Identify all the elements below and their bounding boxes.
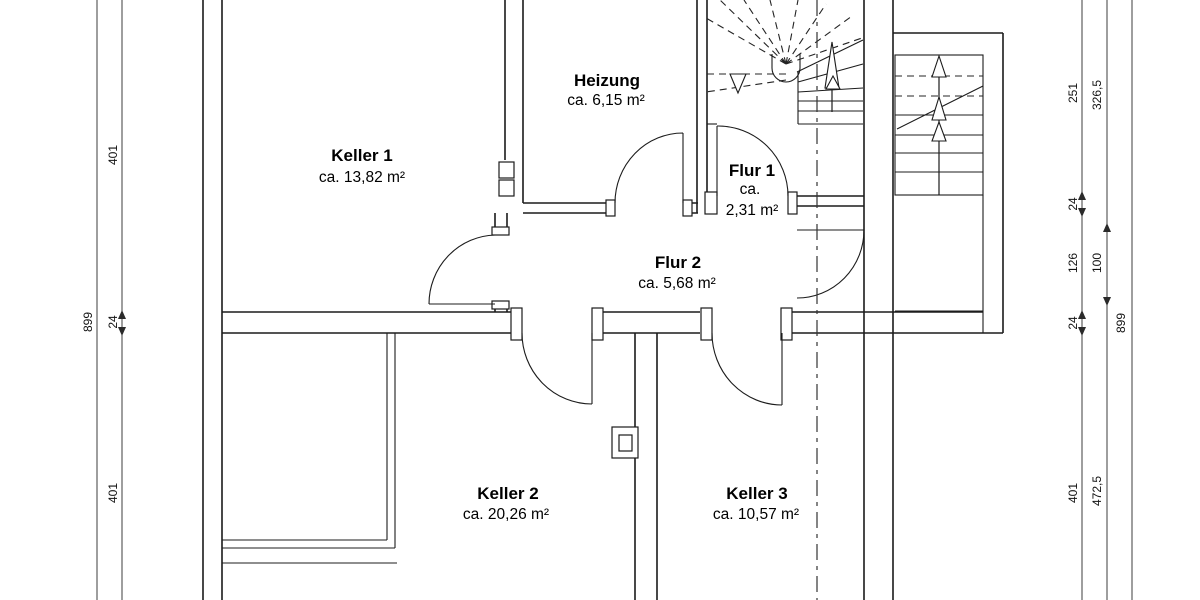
- door-jamb: [592, 308, 603, 340]
- dim-label-left-inner-2: 401: [106, 483, 120, 503]
- dimension-tick: [1103, 297, 1111, 306]
- room-name: Flur 2: [655, 253, 701, 272]
- dim-label-right-inner-1: 24: [1066, 197, 1080, 211]
- door-jamb: [511, 308, 522, 340]
- wall-spine: [222, 312, 1003, 333]
- room-area: 2,31 m²: [726, 202, 779, 219]
- dimension-tick: [1103, 223, 1111, 232]
- floor-plan-canvas: 899 401 24 401 251 24 126 24 401 326,5 1…: [0, 0, 1200, 600]
- room-area: ca.: [740, 181, 761, 198]
- room-area: ca. 20,26 m²: [463, 506, 549, 523]
- wall-left-exterior: [203, 0, 222, 600]
- door-jamb: [492, 301, 509, 309]
- chimney-flue-2: [499, 180, 514, 196]
- dim-label-right-mid-0: 326,5: [1090, 80, 1104, 110]
- room-name: Keller 3: [726, 484, 787, 503]
- door-keller1: [429, 235, 495, 304]
- room-area: ca. 5,68 m²: [638, 275, 716, 292]
- door-flur2-east: [797, 230, 864, 298]
- wall-exterior-stair: [893, 33, 1003, 333]
- wall-heizung-stair: [697, 0, 707, 213]
- chimney-keller2-flue: [619, 435, 632, 451]
- room-name: Heizung: [574, 71, 640, 90]
- door-jamb: [683, 200, 692, 216]
- room-label-flur-2: Flur 2 ca. 5,68 m²: [638, 253, 716, 292]
- wall-east: [864, 0, 893, 600]
- dim-label-right-inner-2: 126: [1066, 253, 1080, 273]
- dimension-chain-right: 251 24 126 24 401 326,5 100 472,5 899: [1066, 0, 1132, 600]
- door-keller3: [712, 333, 782, 405]
- stair-down-arrow-icon: [730, 74, 746, 93]
- dim-label-left-inner-1: 24: [106, 315, 120, 329]
- room-area: ca. 6,15 m²: [567, 92, 645, 109]
- storage-recess: [222, 333, 397, 563]
- walls: [203, 0, 1003, 600]
- room-label-keller-1: Keller 1 ca. 13,82 m²: [319, 146, 405, 186]
- floor-plan-drawing: 899 401 24 401 251 24 126 24 401 326,5 1…: [0, 0, 1200, 600]
- wall-keller2-keller3: [635, 333, 657, 600]
- room-name: Keller 2: [477, 484, 538, 503]
- door-heizung: [615, 133, 683, 203]
- exterior-stair-up-arrow-icon: [932, 97, 946, 120]
- dim-label-right-outer: 899: [1114, 313, 1128, 333]
- room-area: ca. 13,82 m²: [319, 169, 405, 186]
- door-jamb: [606, 200, 615, 216]
- room-label-keller-3: Keller 3 ca. 10,57 m²: [713, 484, 799, 523]
- door-jamb: [788, 192, 797, 214]
- room-name: Flur 1: [729, 161, 775, 180]
- room-label-keller-2: Keller 2 ca. 20,26 m²: [463, 484, 549, 523]
- door-keller2: [522, 333, 592, 404]
- winder-treads-above-cut: [706, 0, 862, 92]
- door-jamb: [781, 308, 792, 340]
- dim-label-right-mid-1: 100: [1090, 253, 1104, 273]
- winder-newel: [772, 54, 800, 82]
- wall-flur1-bottom: [797, 196, 864, 206]
- dim-label-right-inner-0: 251: [1066, 83, 1080, 103]
- exterior-stair-up-arrow-icon: [932, 56, 946, 77]
- doors: [429, 126, 864, 405]
- room-name: Keller 1: [331, 146, 392, 165]
- exterior-stair-up-arrow-icon: [932, 122, 946, 141]
- dim-label-left-outer: 899: [81, 312, 95, 332]
- door-jamb: [705, 192, 717, 214]
- chimney-flue-1: [499, 162, 514, 178]
- dim-label-right-inner-3: 24: [1066, 316, 1080, 330]
- exterior-stair: [893, 33, 1003, 333]
- door-jamb: [492, 227, 509, 235]
- dim-label-right-inner-4: 401: [1066, 483, 1080, 503]
- dim-label-left-inner-0: 401: [106, 145, 120, 165]
- dim-label-right-mid-2: 472,5: [1090, 476, 1104, 506]
- door-jamb: [701, 308, 712, 340]
- room-label-heizung: Heizung ca. 6,15 m²: [567, 71, 645, 109]
- dimension-chain-left: 899 401 24 401: [81, 0, 126, 600]
- winder-stair: [706, 0, 863, 124]
- room-area: ca. 10,57 m²: [713, 506, 799, 523]
- room-label-flur-1: Flur 1 ca. 2,31 m²: [726, 161, 779, 219]
